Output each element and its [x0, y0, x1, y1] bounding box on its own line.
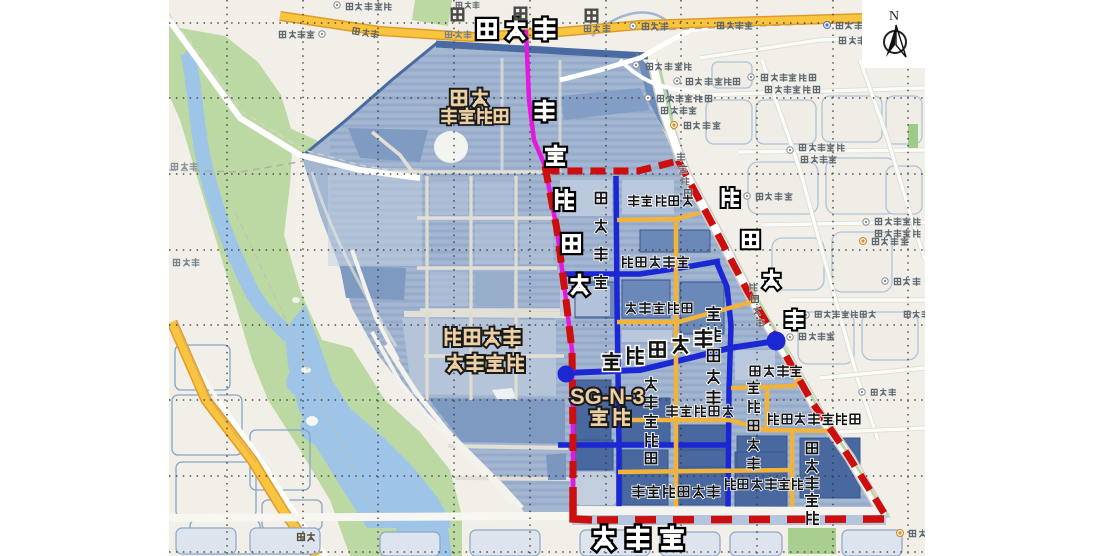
svg-text:N: N — [889, 9, 899, 24]
svg-text:SG-N-3: SG-N-3 — [570, 384, 645, 409]
